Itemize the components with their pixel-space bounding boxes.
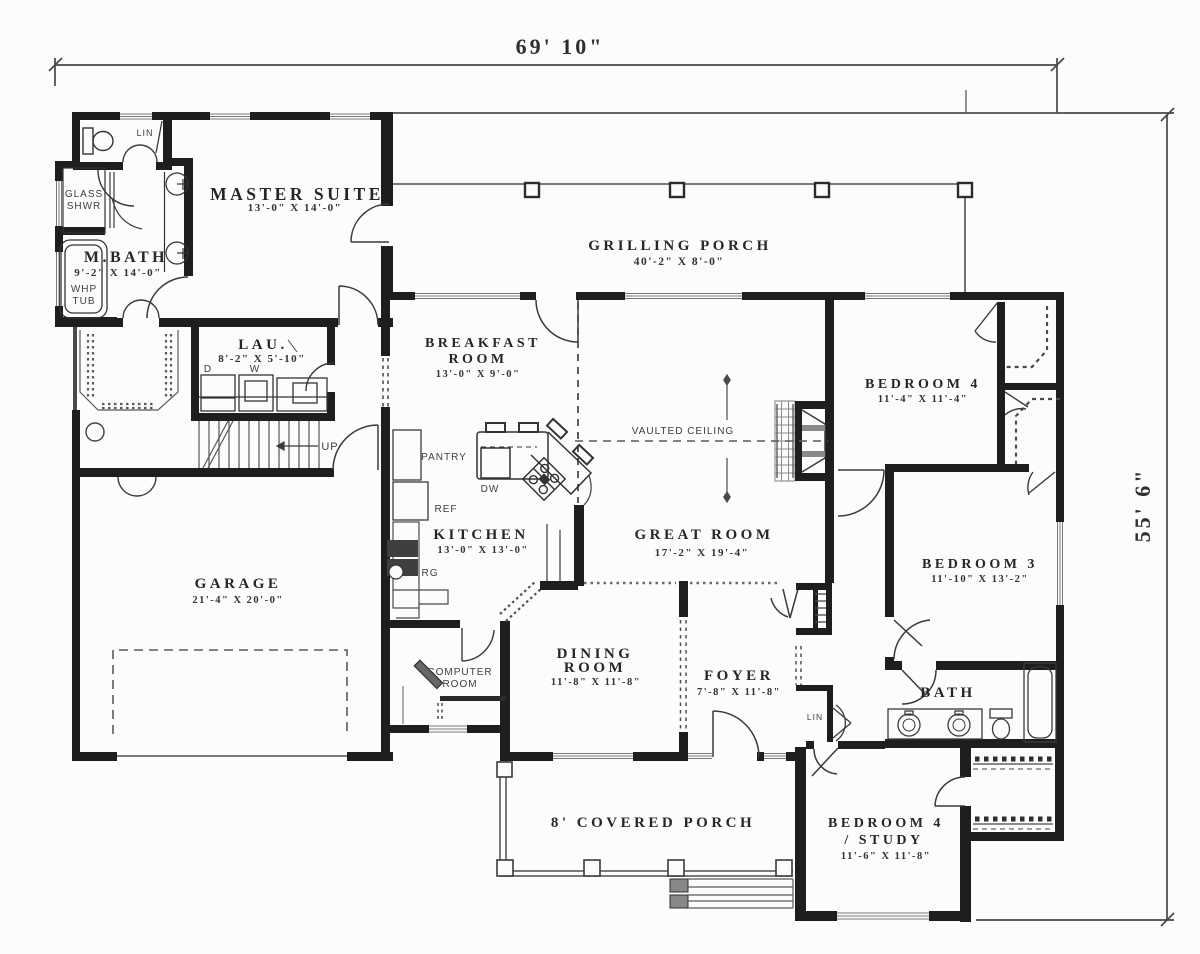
svg-text:13'-0" X 13'-0": 13'-0" X 13'-0": [437, 545, 528, 556]
svg-text:BREAKFAST: BREAKFAST: [425, 336, 541, 351]
svg-text:GLASS: GLASS: [65, 189, 103, 200]
svg-text:BEDROOM 4: BEDROOM 4: [865, 377, 981, 392]
svg-text:55' 6": 55' 6": [1130, 468, 1155, 543]
svg-text:13'-0" X 9'-0": 13'-0" X 9'-0": [436, 369, 521, 380]
svg-text:W: W: [250, 364, 260, 375]
svg-text:D: D: [204, 364, 212, 375]
svg-text:PANTRY: PANTRY: [421, 452, 467, 463]
svg-text:M.BATH: M.BATH: [84, 249, 168, 266]
svg-text:40'-2" X 8'-0": 40'-2" X 8'-0": [634, 256, 725, 268]
svg-text:BEDROOM 4: BEDROOM 4: [828, 816, 944, 831]
svg-text:ROOM: ROOM: [448, 352, 507, 367]
svg-text:GRILLING PORCH: GRILLING PORCH: [588, 238, 772, 254]
svg-text:GREAT ROOM: GREAT ROOM: [634, 527, 773, 543]
svg-text:UP: UP: [321, 441, 338, 453]
svg-text:GARAGE: GARAGE: [195, 576, 282, 592]
svg-text:RG: RG: [422, 568, 439, 579]
svg-text:LIN: LIN: [136, 128, 153, 138]
svg-text:LIN: LIN: [807, 712, 823, 722]
svg-text:8' COVERED PORCH: 8' COVERED PORCH: [551, 815, 755, 831]
svg-text:ROOM: ROOM: [564, 660, 626, 676]
svg-text:69' 10": 69' 10": [516, 34, 605, 59]
svg-text:13'-0" X 14'-0": 13'-0" X 14'-0": [248, 202, 343, 214]
svg-text:21'-4" X 20'-0": 21'-4" X 20'-0": [192, 595, 283, 606]
svg-text:11'-6" X 11'-8": 11'-6" X 11'-8": [841, 851, 931, 862]
svg-text:11'-10" X 13'-2": 11'-10" X 13'-2": [931, 574, 1029, 585]
svg-text:BATH: BATH: [920, 685, 975, 701]
svg-text:FOYER: FOYER: [704, 668, 774, 684]
svg-text:ROOM: ROOM: [442, 679, 477, 690]
svg-text:LAU.: LAU.: [238, 337, 287, 353]
svg-text:SHWR: SHWR: [67, 201, 102, 212]
svg-text:KITCHEN: KITCHEN: [433, 527, 528, 543]
svg-text:11'-8" X 11'-8": 11'-8" X 11'-8": [551, 677, 641, 688]
svg-text:17'-2" X 19'-4": 17'-2" X 19'-4": [655, 547, 750, 559]
svg-text:11'-4" X 11'-4": 11'-4" X 11'-4": [878, 394, 968, 405]
svg-text:COMPUTER: COMPUTER: [427, 667, 492, 678]
svg-text:TUB: TUB: [73, 296, 96, 307]
svg-text:VAULTED CEILING: VAULTED CEILING: [632, 426, 734, 437]
svg-text:BEDROOM 3: BEDROOM 3: [922, 557, 1038, 572]
svg-text:7'-8" X 11'-8": 7'-8" X 11'-8": [697, 687, 781, 698]
svg-text:REF: REF: [435, 504, 458, 515]
svg-text:/ STUDY: / STUDY: [843, 833, 923, 848]
svg-text:WHP: WHP: [71, 284, 97, 295]
svg-text:8'-2" X 5'-10": 8'-2" X 5'-10": [218, 353, 306, 365]
svg-text:MASTER SUITE: MASTER SUITE: [210, 184, 384, 204]
svg-text:9'-2" X 14'-0": 9'-2" X 14'-0": [74, 267, 162, 279]
svg-text:DW: DW: [481, 484, 500, 495]
